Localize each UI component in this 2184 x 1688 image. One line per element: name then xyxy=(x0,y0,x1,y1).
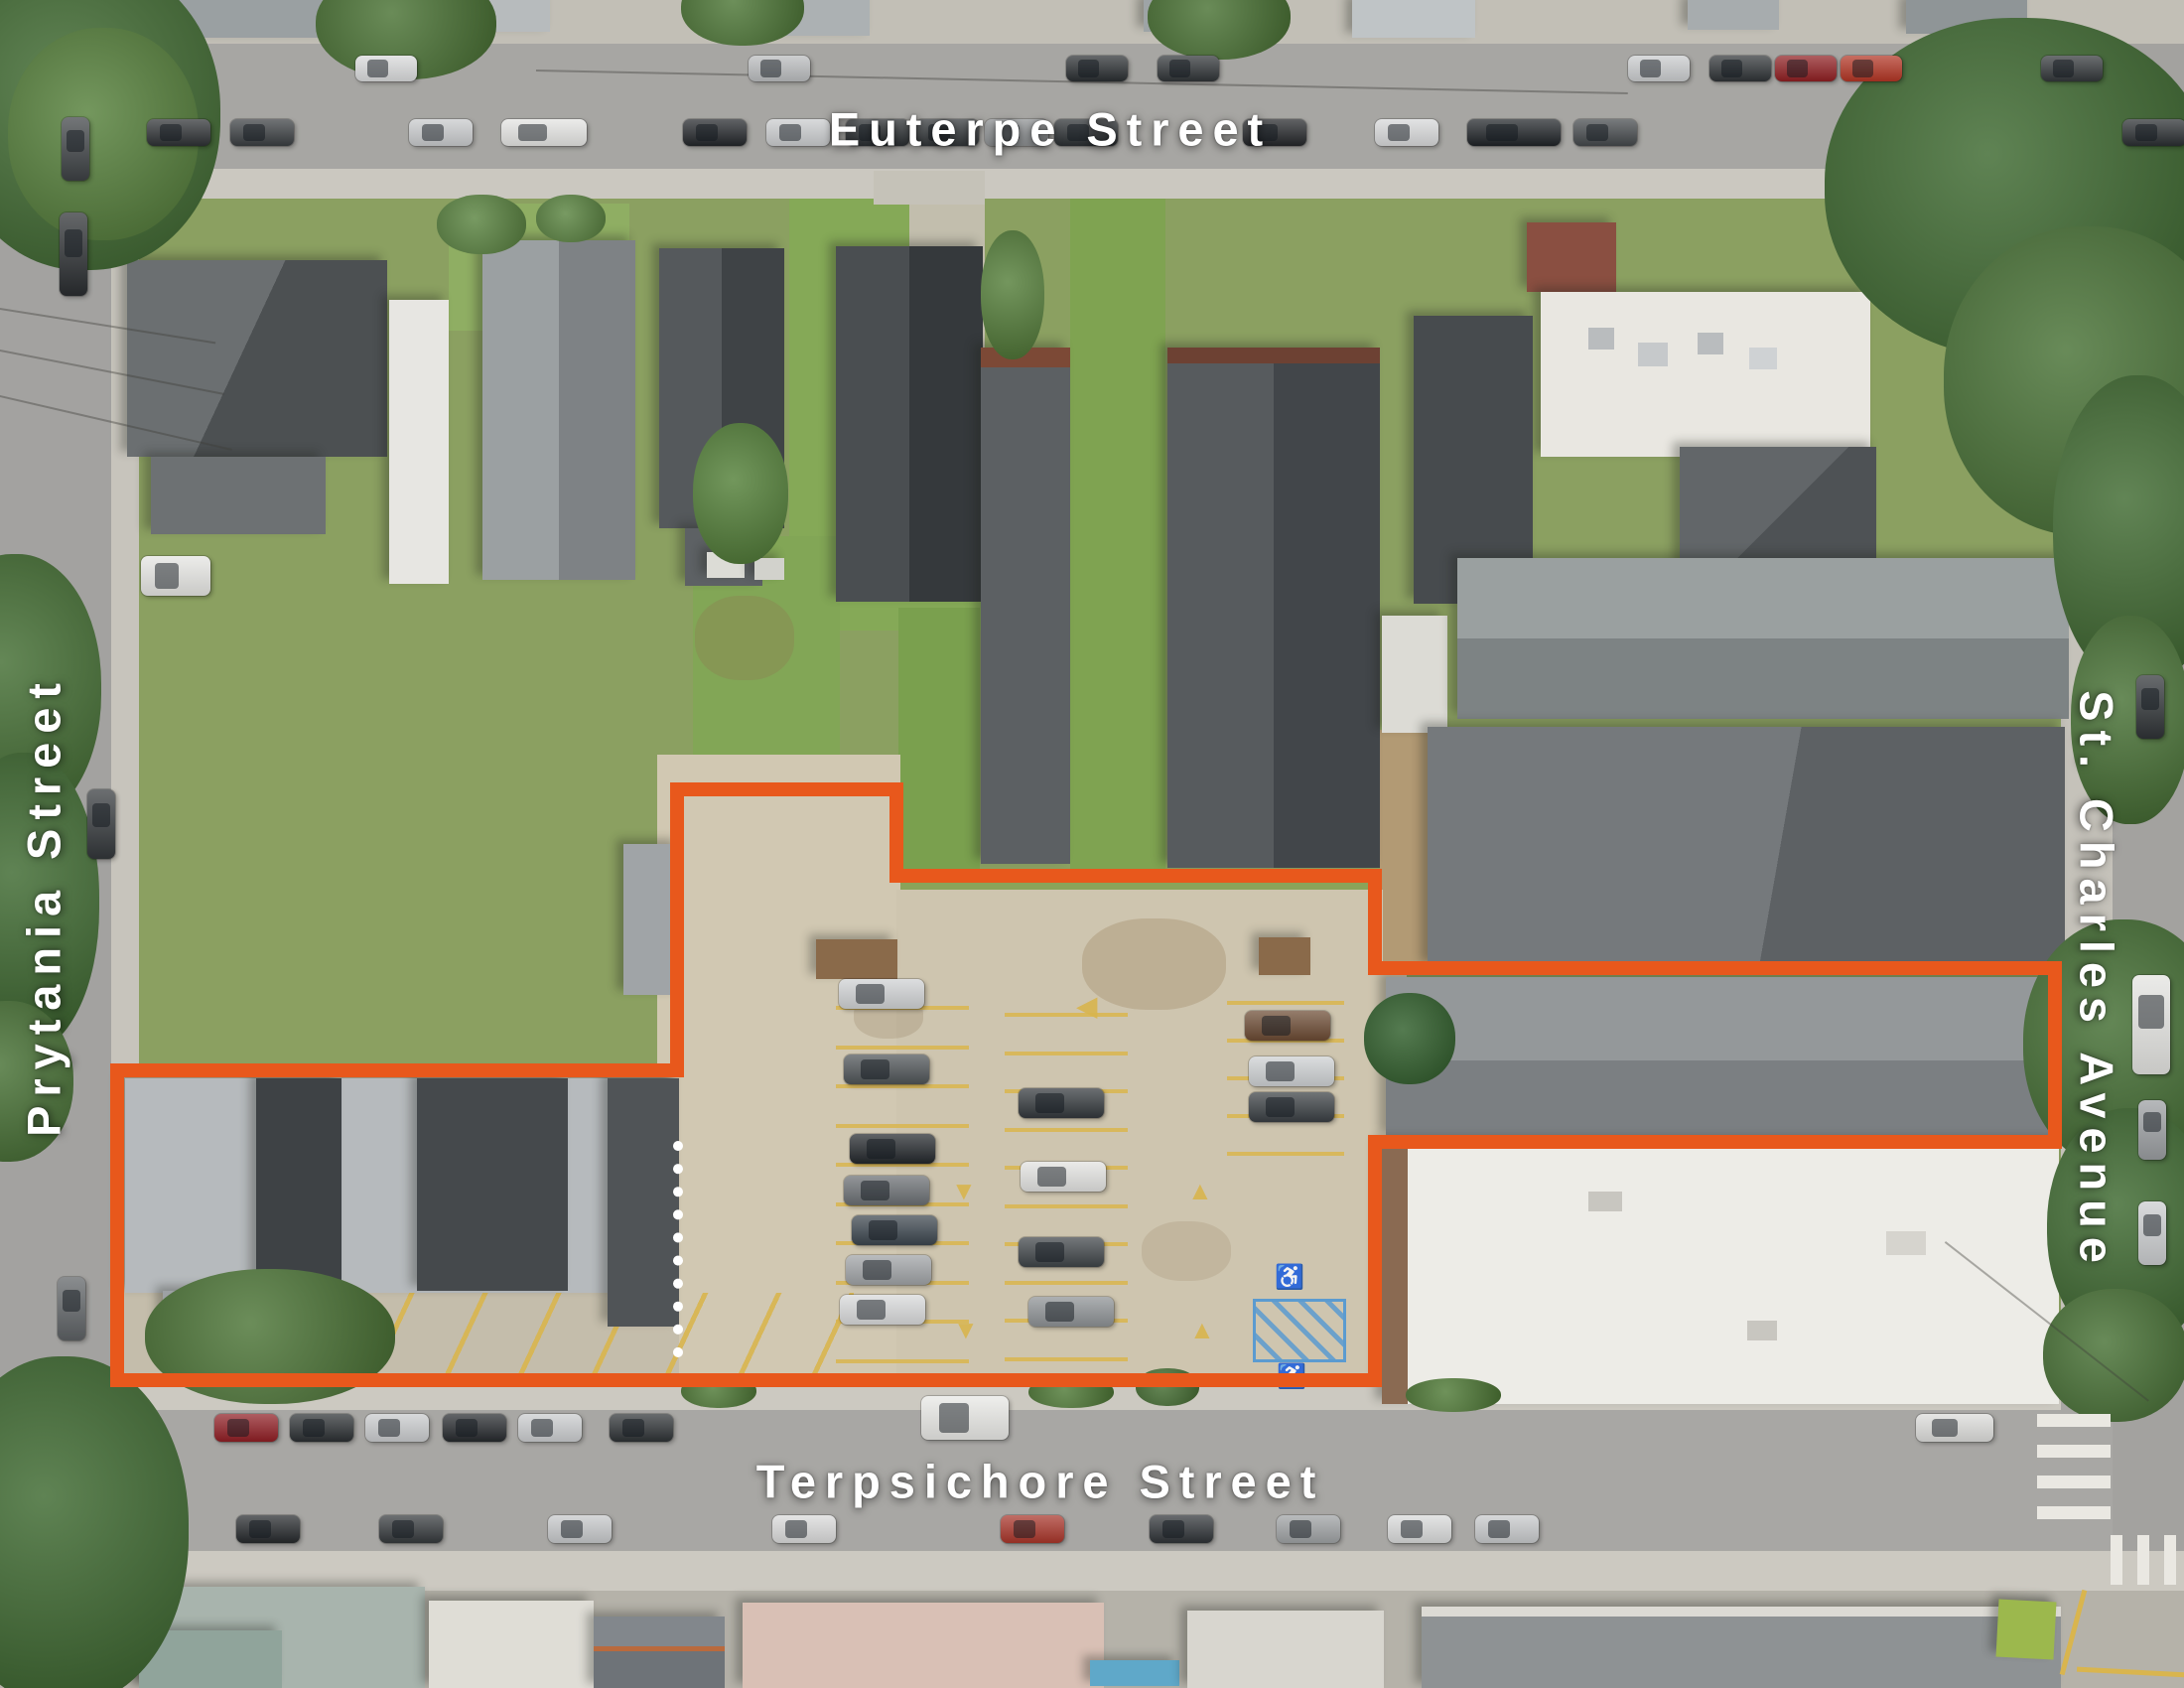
car-glass xyxy=(869,1220,897,1240)
tree-canopy xyxy=(437,195,526,254)
car-glass xyxy=(227,1419,249,1437)
parked-car xyxy=(1475,1515,1539,1543)
parked-car-lot xyxy=(1021,1162,1106,1192)
car-glass xyxy=(1266,1097,1295,1117)
parked-car xyxy=(1841,56,1902,81)
car-glass xyxy=(1169,60,1190,76)
house xyxy=(981,348,1070,864)
shed xyxy=(816,939,897,979)
house xyxy=(1187,1611,1384,1688)
parking-stripe xyxy=(1005,1052,1128,1055)
car-glass xyxy=(65,229,82,258)
parked-car xyxy=(1158,56,1219,81)
parked-car xyxy=(2136,675,2164,739)
parked-car-lot xyxy=(1028,1297,1114,1327)
parked-car xyxy=(443,1414,506,1442)
parked-car-lot xyxy=(1249,1092,1334,1122)
roof-trim xyxy=(594,1646,725,1651)
car-glass xyxy=(2138,995,2163,1029)
roof-trim xyxy=(1422,1607,2061,1617)
pavement-marking: ♿ xyxy=(1275,1263,1304,1293)
parked-car-lot xyxy=(1019,1088,1104,1118)
shed xyxy=(623,844,681,995)
parked-car xyxy=(1388,1515,1451,1543)
parked-car-lot xyxy=(844,1176,929,1205)
street-label-euterpe: Euterpe Street xyxy=(829,106,1272,153)
parked-car xyxy=(1467,119,1561,146)
car-glass xyxy=(531,1419,553,1437)
parked-car xyxy=(365,1414,429,1442)
parked-car xyxy=(355,56,417,81)
parked-car-lot xyxy=(844,1055,929,1084)
scene-layer: ◀▼▲▼▲♿♿ xyxy=(0,0,2184,1688)
parked-car xyxy=(1375,119,1438,146)
parking-stripe xyxy=(1227,1001,1344,1005)
parked-car xyxy=(1001,1515,1064,1543)
tree-canopy xyxy=(1136,1368,1199,1406)
house xyxy=(1167,348,1380,868)
rooftop-ac xyxy=(1749,348,1777,369)
car-glass xyxy=(1162,1520,1184,1538)
pavement-marking: ♿ xyxy=(1277,1362,1306,1392)
warehouse xyxy=(125,1078,677,1293)
parked-car xyxy=(1066,56,1128,81)
ground-lawn xyxy=(1070,199,1165,874)
parked-car-lot xyxy=(1019,1237,1104,1267)
commercial-building xyxy=(1382,1142,2059,1404)
ground-driveway-apron xyxy=(874,171,985,205)
house xyxy=(127,260,387,457)
parked-car-lot xyxy=(850,1134,935,1164)
house xyxy=(1457,558,2069,719)
car-glass xyxy=(160,124,182,142)
car-glass xyxy=(2143,1214,2161,1236)
house xyxy=(482,240,635,580)
aerial-site-photo: ◀▼▲▼▲♿♿ Euterpe Street Prytania Street S… xyxy=(0,0,2184,1688)
parked-car xyxy=(1628,56,1690,81)
car-glass xyxy=(1037,1167,1066,1187)
rooftop-ac xyxy=(1886,1231,1926,1255)
parked-car xyxy=(290,1414,353,1442)
house xyxy=(1428,727,2065,967)
pavement-marking: ▼ xyxy=(953,1315,983,1344)
car-glass xyxy=(867,1139,895,1159)
box-truck xyxy=(2132,975,2170,1074)
parking-stripe xyxy=(1005,1204,1128,1208)
tree-canopy xyxy=(1364,993,1455,1084)
car-glass xyxy=(518,124,547,142)
parked-car-lot xyxy=(846,1255,931,1285)
parked-car xyxy=(147,119,210,146)
pool xyxy=(1090,1660,1179,1686)
parked-car xyxy=(409,119,473,146)
parked-car xyxy=(1709,56,1771,81)
box-truck xyxy=(921,1396,1009,1440)
car-glass xyxy=(1787,60,1808,76)
car-glass xyxy=(1266,1061,1295,1081)
car-glass xyxy=(1290,1520,1311,1538)
parking-stripe xyxy=(1005,1013,1128,1017)
parked-car xyxy=(58,1277,85,1340)
rooftop-ac xyxy=(1588,1192,1622,1211)
parked-car xyxy=(2122,119,2184,146)
house xyxy=(1422,1607,2061,1688)
parked-car-lot xyxy=(852,1215,937,1245)
parked-car xyxy=(87,789,115,859)
house xyxy=(389,300,449,584)
car-glass xyxy=(2141,688,2159,710)
car-glass xyxy=(622,1419,644,1437)
handicap-hatch-box xyxy=(1253,1299,1346,1362)
parked-car xyxy=(1277,1515,1340,1543)
car-glass xyxy=(392,1520,414,1538)
parking-stripe xyxy=(1005,1128,1128,1132)
parked-car xyxy=(2138,1201,2166,1265)
commercial-building xyxy=(1541,292,1870,457)
house xyxy=(836,246,983,602)
car-glass xyxy=(1262,1016,1291,1036)
tree-canopy xyxy=(145,1269,395,1404)
parked-car xyxy=(1916,1414,1993,1442)
parked-car xyxy=(214,1414,278,1442)
tree-canopy xyxy=(0,1356,189,1688)
house xyxy=(1386,977,2051,1138)
parked-car xyxy=(749,56,810,81)
car-glass xyxy=(939,1403,969,1432)
parking-stripe xyxy=(836,1359,969,1363)
car-glass xyxy=(1401,1520,1423,1538)
parked-car xyxy=(1150,1515,1213,1543)
car-glass xyxy=(1014,1520,1035,1538)
parked-car xyxy=(766,119,830,146)
parked-car xyxy=(2138,1100,2166,1160)
parked-car xyxy=(548,1515,612,1543)
umbrella xyxy=(1996,1600,2057,1660)
rooftop-ac xyxy=(1638,343,1668,366)
curb-line-yellow xyxy=(2077,1667,2184,1679)
car-glass xyxy=(2135,124,2157,142)
car-glass xyxy=(63,1290,80,1312)
tree-canopy xyxy=(1028,1376,1114,1408)
car-glass xyxy=(1035,1242,1064,1262)
car-glass xyxy=(1388,124,1410,142)
pavement-marking: ◀ xyxy=(1077,991,1107,1021)
car-glass xyxy=(303,1419,325,1437)
house xyxy=(1688,0,1779,30)
street-label-prytania: Prytania Street xyxy=(21,674,68,1137)
car-glass xyxy=(863,1260,891,1280)
ground-lawn xyxy=(898,608,980,878)
curb-line-yellow xyxy=(2060,1590,2088,1675)
tree-canopy xyxy=(2043,1289,2184,1422)
parked-car xyxy=(236,1515,300,1543)
house xyxy=(429,1601,594,1688)
shed xyxy=(754,558,784,580)
tree-canopy xyxy=(1148,0,1291,60)
pavement-marking: ▲ xyxy=(1187,1176,1217,1205)
parked-car xyxy=(379,1515,443,1543)
parked-car-lot xyxy=(840,1295,925,1325)
car-glass xyxy=(1035,1093,1064,1113)
car-glass xyxy=(67,130,84,152)
parked-car xyxy=(60,212,87,296)
car-glass xyxy=(249,1520,271,1538)
tree-canopy xyxy=(536,195,606,242)
car-glass xyxy=(1721,60,1742,76)
car-glass xyxy=(1045,1302,1074,1322)
street-label-st-charles: St. Charles Avenue xyxy=(2074,690,2120,1272)
roof-trim xyxy=(1382,1142,1408,1404)
pavement-stain xyxy=(1142,1221,1231,1281)
car-glass xyxy=(1488,1520,1510,1538)
parked-car xyxy=(230,119,294,146)
parked-car xyxy=(1573,119,1637,146)
pavement-marking: ▲ xyxy=(1189,1315,1219,1344)
parked-car xyxy=(62,117,89,181)
parked-car-lot xyxy=(1249,1056,1334,1086)
car-glass xyxy=(2053,60,2074,76)
rooftop-ac xyxy=(1747,1321,1777,1340)
tree-canopy xyxy=(681,1374,756,1408)
car-glass xyxy=(1640,60,1661,76)
parked-car-lot xyxy=(839,979,924,1009)
car-glass xyxy=(856,984,885,1004)
tree-canopy xyxy=(1406,1378,1501,1412)
pavement-marking: ▼ xyxy=(951,1176,981,1205)
parked-car xyxy=(2041,56,2103,81)
parked-car xyxy=(1775,56,1837,81)
warehouse-section xyxy=(608,1078,679,1327)
roof-trim xyxy=(1167,348,1380,363)
shed xyxy=(1382,616,1447,733)
car-glass xyxy=(785,1520,807,1538)
warehouse-section xyxy=(256,1078,341,1291)
parking-stripe xyxy=(836,1084,969,1088)
car-glass xyxy=(861,1181,889,1200)
car-glass xyxy=(861,1059,889,1079)
car-glass xyxy=(155,563,179,589)
house xyxy=(594,1617,725,1688)
car-glass xyxy=(367,60,388,76)
car-glass xyxy=(1078,60,1099,76)
parking-stripe xyxy=(1005,1281,1128,1285)
crosswalk-zebra xyxy=(2037,1414,2111,1537)
car-glass xyxy=(422,124,444,142)
crosswalk-zebra xyxy=(2111,1535,2184,1585)
van-driveway xyxy=(141,556,210,596)
warehouse-section xyxy=(417,1078,568,1291)
patio xyxy=(743,1603,1104,1688)
parked-car xyxy=(683,119,747,146)
parked-car-lot xyxy=(1245,1011,1330,1041)
shed xyxy=(1259,937,1310,975)
car-glass xyxy=(92,803,110,827)
car-glass xyxy=(760,60,781,76)
tree-canopy xyxy=(681,0,804,46)
parked-car xyxy=(518,1414,582,1442)
street-label-terpsichore: Terpsichore Street xyxy=(756,1459,1325,1505)
car-glass xyxy=(1486,124,1518,142)
car-glass xyxy=(1852,60,1873,76)
car-glass xyxy=(1586,124,1608,142)
parking-stripe xyxy=(836,1046,969,1050)
house xyxy=(1527,222,1616,292)
car-glass xyxy=(779,124,801,142)
parking-stripe xyxy=(1005,1357,1128,1361)
parking-stripe xyxy=(1227,1152,1344,1156)
parking-stripe xyxy=(836,1124,969,1128)
car-glass xyxy=(378,1419,400,1437)
car-glass xyxy=(2143,1112,2161,1132)
parked-car xyxy=(772,1515,836,1543)
car-glass xyxy=(456,1419,478,1437)
house xyxy=(151,457,326,534)
car-glass xyxy=(243,124,265,142)
parked-car xyxy=(501,119,587,146)
rooftop-ac xyxy=(1588,328,1614,350)
tree-canopy xyxy=(981,230,1044,359)
house xyxy=(1352,0,1475,38)
rooftop-ac xyxy=(1698,333,1723,354)
car-glass xyxy=(561,1520,583,1538)
tree-canopy xyxy=(693,423,788,564)
car-glass xyxy=(1932,1419,1959,1437)
parked-car xyxy=(610,1414,673,1442)
car-glass xyxy=(857,1300,886,1320)
car-glass xyxy=(696,124,718,142)
pavement-stain xyxy=(695,596,794,680)
